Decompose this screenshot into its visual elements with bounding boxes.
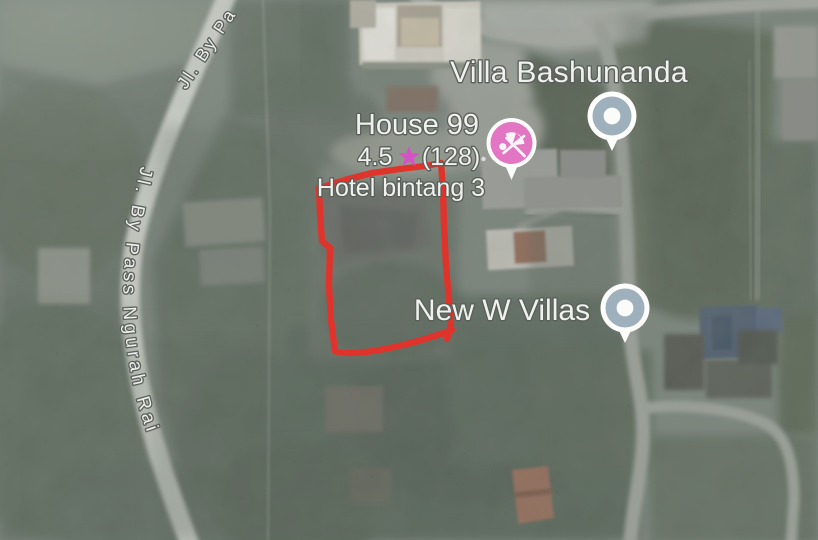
svg-text:House 99: House 99: [355, 109, 479, 141]
svg-text:New W Villas: New W Villas: [414, 294, 590, 327]
svg-text:★: ★: [396, 141, 421, 172]
svg-text:Villa Bashunanda: Villa Bashunanda: [450, 56, 688, 89]
svg-text:(128): (128): [422, 143, 480, 171]
svg-text:4.5: 4.5: [358, 143, 393, 171]
svg-text:Hotel bintang 3: Hotel bintang 3: [317, 174, 485, 202]
